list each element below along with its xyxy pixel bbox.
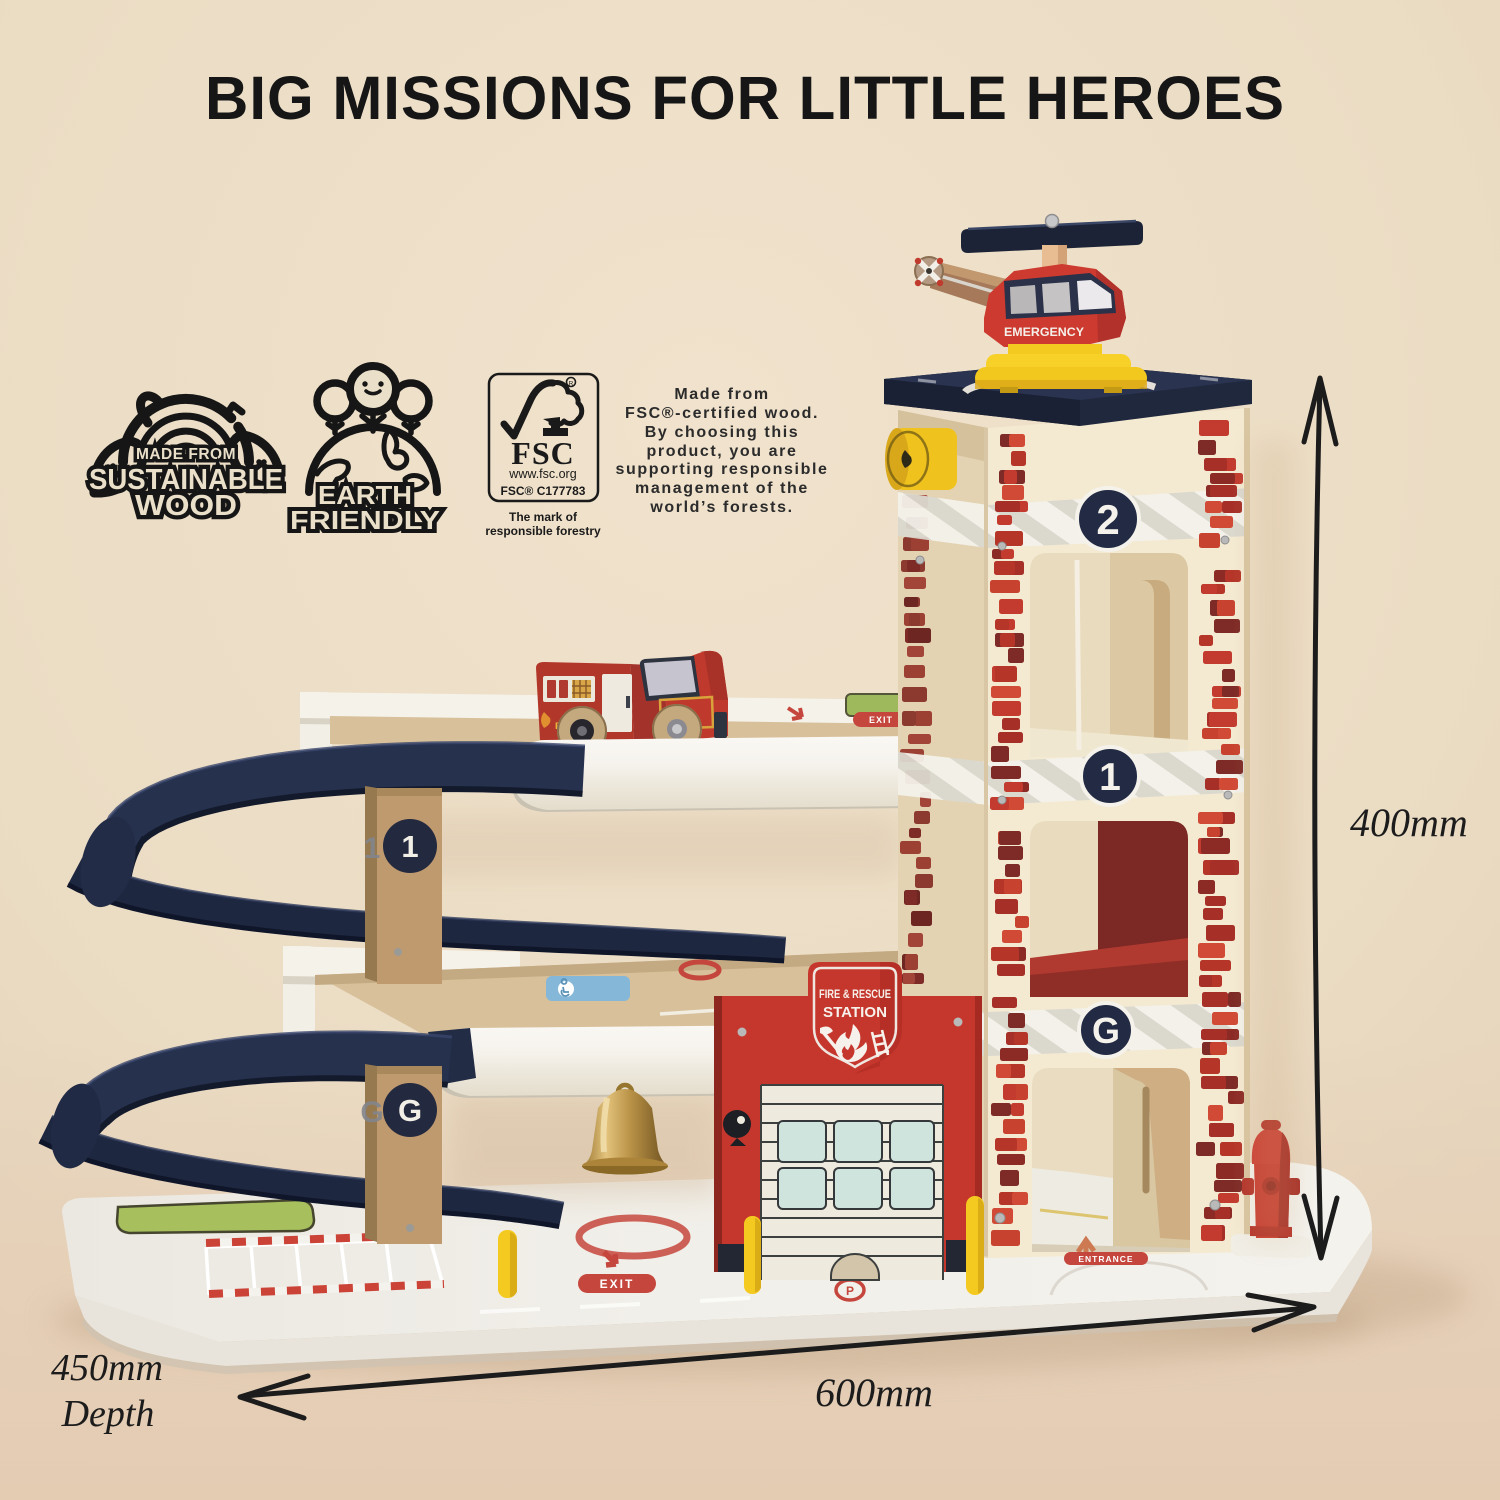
svg-text:By choosing this: By choosing this (645, 424, 800, 441)
svg-text:FSC®-certified wood.: FSC®-certified wood. (625, 405, 819, 422)
svg-text:STATION: STATION (823, 1004, 887, 1021)
svg-text:BIG MISSIONS FOR LITTLE HEROES: BIG MISSIONS FOR LITTLE HEROES (205, 64, 1285, 132)
svg-text:EMERGENCY: EMERGENCY (1004, 325, 1084, 339)
svg-text:ENTRANCE: ENTRANCE (1078, 1254, 1133, 1264)
svg-text:600mm: 600mm (815, 1370, 933, 1415)
svg-text:450mm: 450mm (51, 1347, 163, 1389)
svg-text:400mm: 400mm (1350, 800, 1468, 845)
svg-text:2: 2 (1096, 496, 1119, 543)
svg-text:FIRE & RESCUE: FIRE & RESCUE (819, 987, 891, 1001)
svg-text:MADE FROM: MADE FROM (136, 446, 236, 463)
svg-text:product, you are: product, you are (647, 443, 798, 460)
svg-text:Made from: Made from (674, 386, 769, 403)
svg-text:G: G (398, 1093, 422, 1128)
svg-text:G: G (360, 1096, 383, 1129)
svg-text:EXIT: EXIT (869, 715, 893, 725)
svg-text:world’s forests.: world’s forests. (649, 499, 793, 516)
svg-text:www.fsc.org: www.fsc.org (508, 467, 576, 481)
svg-text:1: 1 (401, 829, 418, 864)
svg-text:FSC: FSC (511, 435, 574, 471)
svg-text:G: G (1092, 1010, 1120, 1051)
svg-text:FRIENDLY: FRIENDLY (290, 505, 440, 535)
svg-text:P: P (846, 1284, 854, 1298)
svg-text:R: R (569, 381, 574, 388)
svg-text:FSC® C177783: FSC® C177783 (501, 484, 586, 498)
svg-text:Depth: Depth (61, 1393, 155, 1435)
svg-text:supporting responsible: supporting responsible (616, 461, 829, 478)
svg-text:The mark of: The mark of (509, 510, 578, 524)
svg-text:1: 1 (364, 832, 381, 865)
svg-text:management of the: management of the (635, 480, 809, 497)
svg-text:WOOD: WOOD (135, 490, 237, 522)
svg-text:EXIT: EXIT (600, 1277, 635, 1291)
svg-text:responsible forestry: responsible forestry (485, 524, 601, 538)
svg-text:1: 1 (1099, 756, 1121, 799)
